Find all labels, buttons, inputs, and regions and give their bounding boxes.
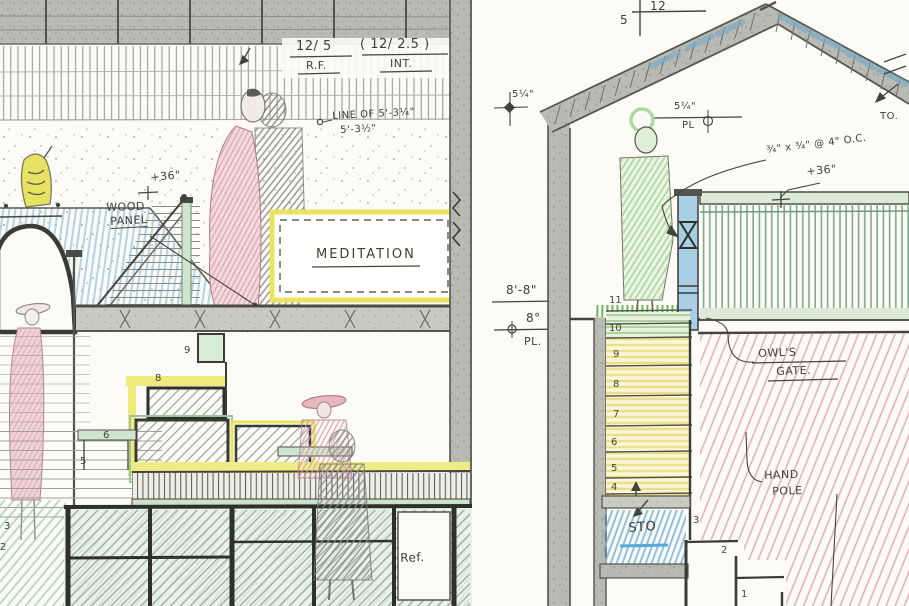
tread-number: 1	[741, 590, 747, 600]
tread-number: 8	[155, 374, 161, 384]
roof-ratio-left: 12/ 5	[296, 40, 332, 53]
tread-number: 5	[611, 464, 617, 474]
sketch-canvas	[0, 0, 909, 606]
line-of-dim: 5'-3½"	[340, 124, 377, 136]
dim-8-8-label: 8'-8"	[506, 284, 537, 296]
dim-5q-left-label: 5¼"	[512, 90, 534, 100]
sto-room	[600, 500, 688, 578]
sto-label: STO	[628, 520, 657, 535]
dim-8-0-label: 8°	[526, 312, 541, 324]
tread-number: 5	[80, 457, 86, 467]
green-hatch-ground	[0, 500, 66, 606]
tread-number: 7	[613, 410, 619, 420]
tread-number: 6	[103, 431, 109, 441]
pitch-rise-label: 5	[620, 14, 628, 26]
hand-label: HAND	[764, 469, 799, 481]
wood-panel-label-1: WOOD	[106, 201, 145, 213]
roof-ratio-left-sub: R.F.	[306, 60, 327, 71]
tread-number: 10	[609, 324, 622, 334]
ref-label: Ref.	[400, 551, 425, 564]
railing	[698, 192, 909, 320]
tread-number: 4	[611, 483, 617, 493]
right-building-section	[540, 0, 909, 606]
pl-right-label: PL	[682, 121, 695, 131]
dim-5q-right-label: 5¼"	[674, 102, 696, 112]
tread-number: 6	[611, 438, 617, 448]
plus36-left-label: +36"	[150, 169, 181, 183]
tread-number: 9	[613, 350, 619, 360]
pitch-symbol	[632, 0, 706, 36]
plus36-right-label: +36"	[806, 163, 837, 177]
left-building-section	[0, 0, 472, 606]
pl-left-label: PL.	[524, 336, 542, 347]
figure-green	[620, 127, 673, 320]
owls-label: OWL'S	[758, 347, 797, 359]
left-wall	[548, 116, 570, 606]
plate-dim	[654, 110, 742, 133]
roof-ratio-right-sub: INT.	[390, 58, 412, 69]
tread-number: 3	[693, 516, 699, 526]
roof-ratio-right: ( 12/ 2.5 )	[360, 38, 430, 51]
gate-label: GATE.	[776, 365, 811, 377]
meditation-label: MEDITATION	[316, 248, 416, 261]
wood-panel-label-2: PANEL	[110, 214, 148, 229]
pitch-run-label: 12	[650, 0, 666, 12]
architectural-sketch: 12/ 5 R.F. ( 12/ 2.5 ) INT. LINE OF 5'-3…	[0, 0, 909, 606]
tread-number: 9	[184, 346, 190, 356]
tread-number: 11	[609, 296, 622, 306]
owls-gate-post	[674, 189, 702, 330]
tread-number: 3	[4, 522, 10, 532]
leader-circle	[317, 119, 322, 124]
tread-number: 8	[613, 380, 619, 390]
pole-label: POLE	[772, 485, 803, 497]
to-label: TO.	[880, 112, 898, 122]
floor-band	[76, 306, 472, 332]
figure-pink-robed	[210, 89, 265, 320]
tread-number: 2	[721, 546, 727, 556]
tread-number: 2	[0, 543, 6, 553]
